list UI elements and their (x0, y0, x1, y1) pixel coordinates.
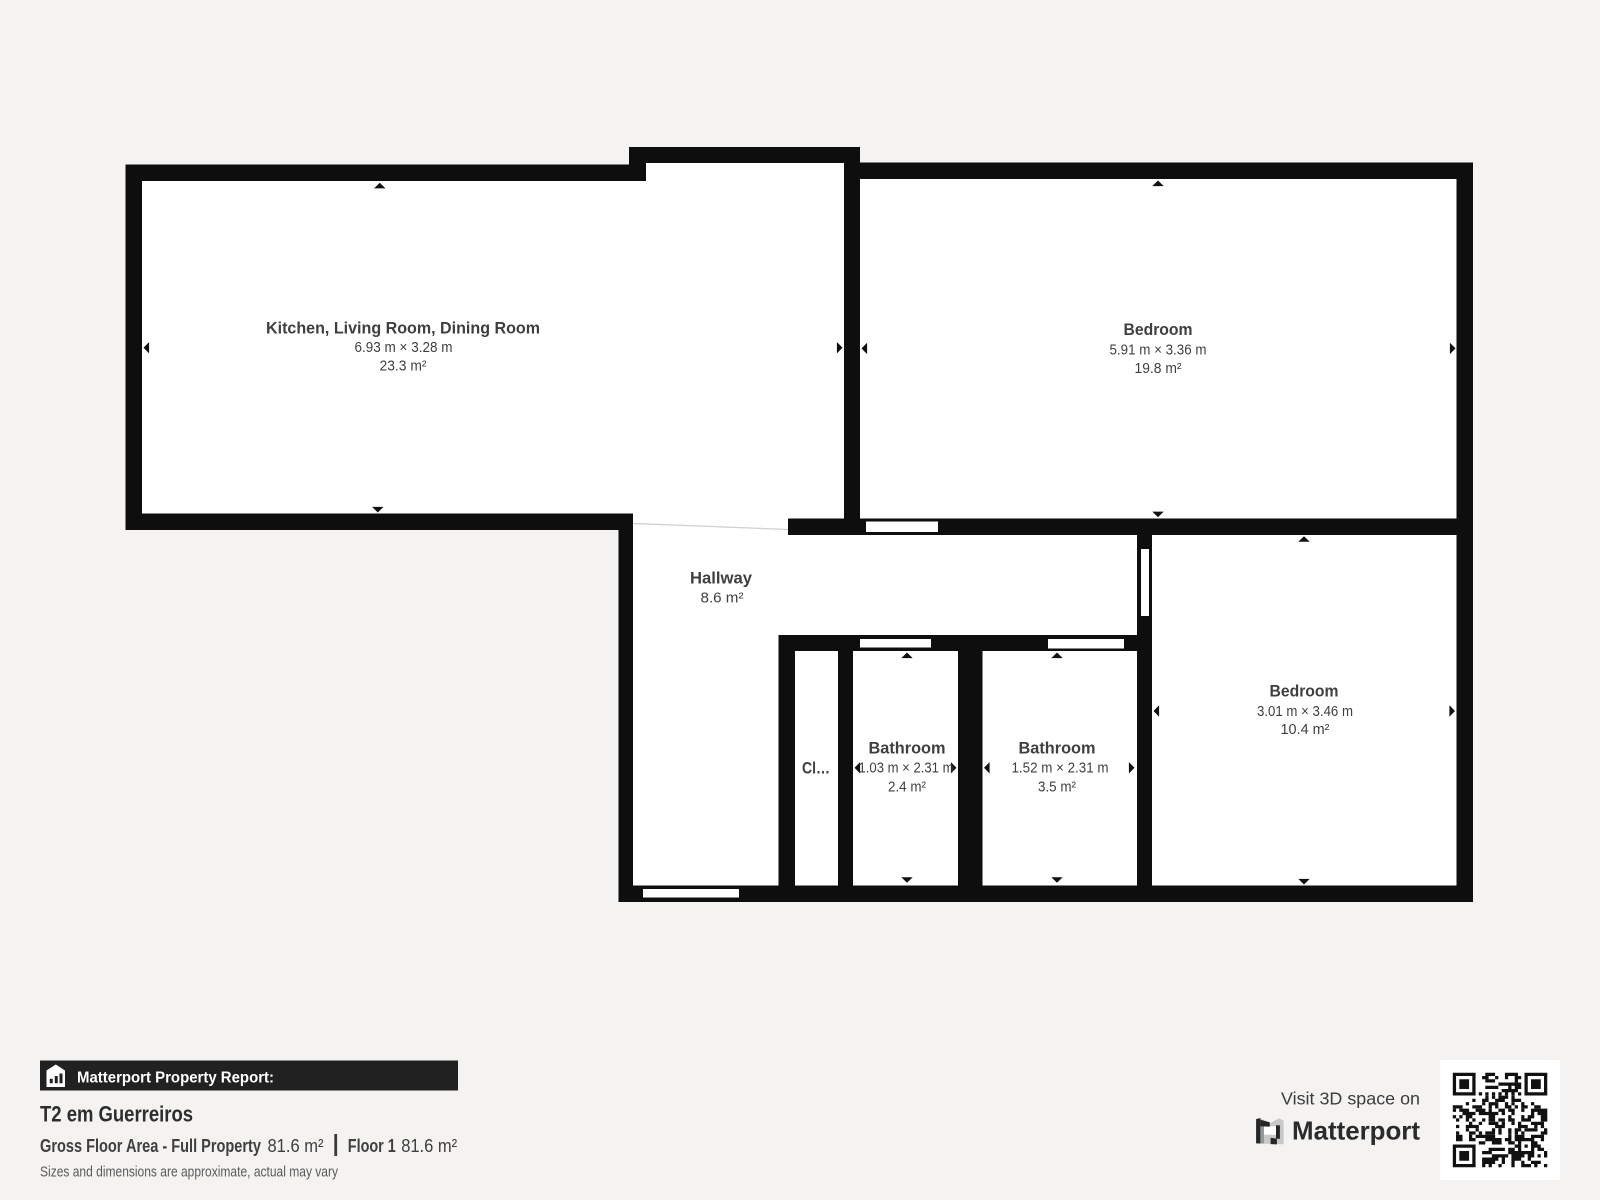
svg-text:Visit 3D space on: Visit 3D space on (1281, 1089, 1420, 1109)
svg-text:81.6 m²: 81.6 m² (401, 1135, 457, 1156)
svg-text:6.93 m × 3.28 m: 6.93 m × 3.28 m (355, 340, 453, 356)
svg-text:23.3 m²: 23.3 m² (380, 359, 427, 375)
svg-text:Floor 1: Floor 1 (348, 1135, 396, 1156)
svg-text:Hallway: Hallway (690, 569, 753, 588)
svg-text:Bathroom: Bathroom (869, 739, 946, 758)
svg-text:Matterport: Matterport (1292, 1116, 1420, 1146)
svg-text:81.6 m²: 81.6 m² (268, 1135, 324, 1156)
svg-text:Sizes and dimensions are appro: Sizes and dimensions are approximate, ac… (40, 1164, 338, 1181)
svg-text:8.6 m²: 8.6 m² (701, 591, 744, 607)
svg-text:1.03 m × 2.31 m: 1.03 m × 2.31 m (859, 761, 954, 777)
svg-text:2.4 m²: 2.4 m² (888, 780, 926, 796)
svg-text:Kitchen, Living Room, Dining R: Kitchen, Living Room, Dining Room (266, 319, 540, 338)
svg-text:Matterport Property Report:: Matterport Property Report: (77, 1070, 274, 1087)
svg-text:T2 em Guerreiros: T2 em Guerreiros (40, 1102, 193, 1127)
svg-text:Gross Floor Area - Full Proper: Gross Floor Area - Full Property (40, 1135, 262, 1156)
svg-text:3.01 m × 3.46 m: 3.01 m × 3.46 m (1257, 704, 1353, 720)
svg-text:1.52 m × 2.31 m: 1.52 m × 2.31 m (1012, 761, 1109, 777)
svg-text:Bathroom: Bathroom (1019, 739, 1096, 758)
svg-text:Bedroom: Bedroom (1124, 320, 1193, 339)
svg-text:Cl…: Cl… (802, 759, 830, 778)
svg-text:19.8 m²: 19.8 m² (1135, 361, 1182, 377)
svg-text:3.5 m²: 3.5 m² (1038, 780, 1076, 796)
svg-text:5.91 m × 3.36 m: 5.91 m × 3.36 m (1110, 343, 1207, 359)
svg-text:10.4 m²: 10.4 m² (1281, 722, 1330, 738)
svg-text:Bedroom: Bedroom (1270, 682, 1339, 701)
